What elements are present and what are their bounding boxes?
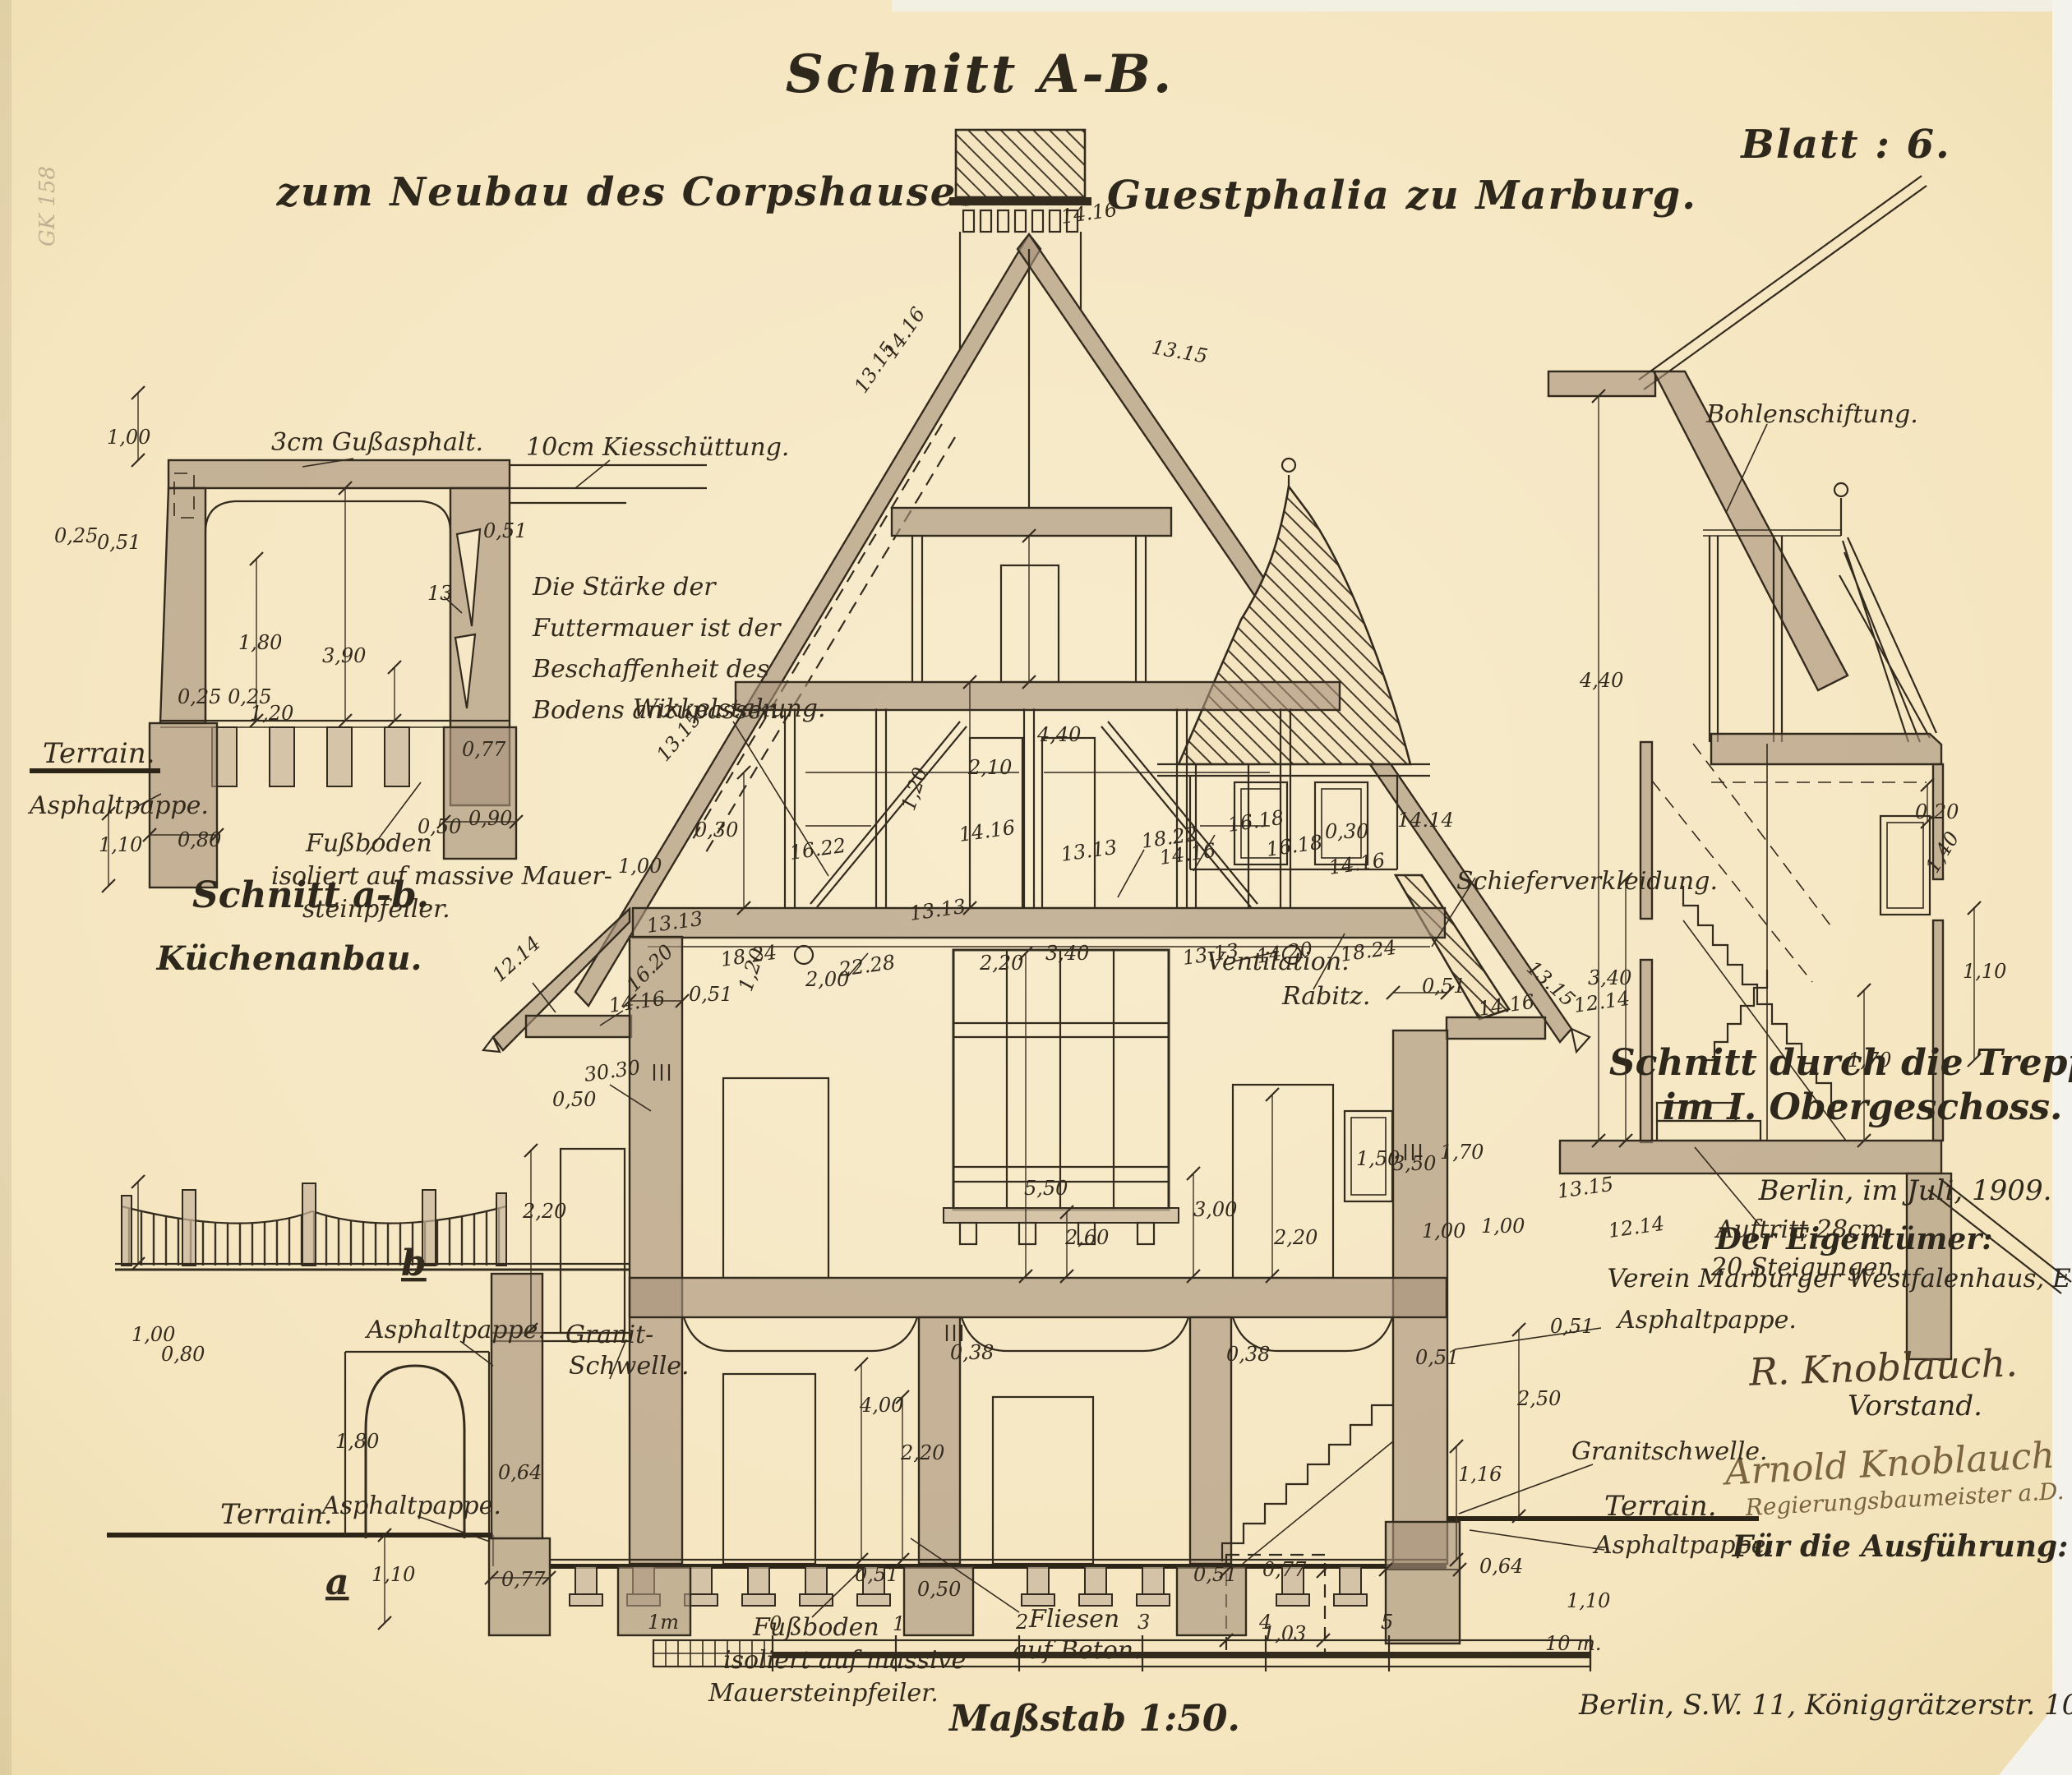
annotation-label: 0,38 <box>950 1341 994 1364</box>
annotation-label: 0,51 <box>483 519 527 542</box>
annotation-label: 0,80 <box>161 1343 205 1366</box>
annotation-label: Terrain. <box>1604 1490 1717 1523</box>
annotation-label: 0,30 <box>695 818 738 841</box>
annotation-label: a <box>325 1561 349 1603</box>
annotation-label: Asphaltpappe. <box>1615 1306 1797 1335</box>
annotation-label: 3,50 <box>1392 1152 1436 1175</box>
annotation-label: 0,50 <box>552 1088 596 1111</box>
annotation-label: Granitschwelle. <box>1571 1437 1768 1466</box>
upper-attic-floor <box>736 682 1340 710</box>
annotation-label: Mauersteinpfeiler. <box>708 1679 939 1708</box>
scan-edge-right <box>2052 0 2072 1775</box>
subtitle-right: Guestphalia zu Marburg. <box>1107 173 1697 219</box>
annotation-label: 20 Steigungen. <box>1710 1253 1901 1282</box>
annotation-label: 0,51 <box>1550 1315 1594 1338</box>
annotation-label: 2,10 <box>967 756 1012 779</box>
annotation-label: Terrain. <box>220 1498 333 1531</box>
stair-detail-subtitle: im I. Obergeschoss. <box>1663 1086 2063 1128</box>
annotation-label: 0,51 <box>1422 975 1465 998</box>
annotation-label: 2,20 <box>979 952 1023 975</box>
annotation-label: auf Beton. <box>1013 1636 1142 1665</box>
annotation-label: 2,60 <box>1064 1226 1109 1249</box>
annotation-label: b <box>401 1242 427 1284</box>
annotation-label: Asphaltpappe. <box>320 1491 501 1520</box>
annotation-label: 2,20 <box>522 1200 566 1223</box>
annotation-label: 0,30 <box>1325 820 1368 843</box>
annotation-label: 0,64 <box>498 1461 542 1484</box>
annotation-label: Asphaltpappe. <box>364 1316 546 1344</box>
left-outer-wall <box>630 937 682 1564</box>
annotation-label: 1,00 <box>1481 1215 1525 1238</box>
annotation-label: 1,70 <box>1848 1049 1891 1072</box>
annotation-label: 14.14 <box>1397 809 1454 832</box>
annotation-label: 1,10 <box>1963 960 2006 983</box>
drawing-title: Schnitt A-B. <box>786 44 1174 105</box>
annotation-label: 0,77 <box>501 1568 546 1591</box>
kitchen-detail-subtitle: Küchenanbau. <box>156 939 422 978</box>
annotation-label: 1,16 <box>1458 1463 1502 1486</box>
annotation-label: Ventilation. <box>1207 947 1350 976</box>
annotation-label: 1,10 <box>99 833 142 856</box>
annotation-label: Schieferverkleidung. <box>1456 867 1718 896</box>
annotation-label: Schwelle. <box>569 1352 690 1381</box>
signature-1: R. Knoblauch. <box>1747 1340 2018 1394</box>
annotation-label: 2 <box>1015 1611 1028 1634</box>
annotation-label: isoliert auf massive Mauer- <box>271 862 612 891</box>
annotation-label: isoliert auf massive <box>723 1646 966 1675</box>
drawing-stage: GK 158 Schnitt A-B. zum Neubau des Corps… <box>0 0 2072 1775</box>
scanned-drawing-page: { "meta": { "archive_note": "GK 158" }, … <box>0 0 2072 1775</box>
annotation-label: 5,50 <box>1024 1177 1068 1200</box>
annotation-label: 10 m. <box>1545 1632 1602 1655</box>
annotation-label: 0,64 <box>1479 1555 1523 1578</box>
execution-heading: Für die Ausführung: <box>1732 1529 2069 1564</box>
annotation-label: Beschaffenheit des <box>532 655 769 684</box>
annotation-label: Die Stärke der <box>532 573 717 602</box>
annotation-label: 0,51 <box>1415 1346 1459 1369</box>
annotation-label: 1,20 <box>250 702 293 725</box>
annotation-label: 2,50 <box>1516 1387 1561 1410</box>
annotation-label: 1,00 <box>1422 1219 1465 1242</box>
annotation-label: 5 <box>1381 1611 1393 1634</box>
annotation-label: 0,20 <box>1915 800 1959 823</box>
annotation-label: 0,51 <box>855 1563 898 1586</box>
annotation-label: 3,40 <box>1588 966 1631 989</box>
annotation-label: Terrain. <box>43 737 155 770</box>
annotation-label: Bohlenschiftung. <box>1705 400 1918 429</box>
annotation-label: Asphaltpappe. <box>1592 1531 1774 1560</box>
date-line: Berlin, im Juli, 1909. <box>1758 1174 2052 1207</box>
annotation-label: 0,51 <box>689 983 732 1006</box>
annotation-label: 1 <box>893 1612 905 1635</box>
annotation-label: 4 <box>1258 1611 1271 1634</box>
annotation-label: 0,77 <box>462 738 506 761</box>
annotation-label: 0,38 <box>1226 1343 1270 1366</box>
annotation-label: Asphaltpappe. <box>27 791 209 820</box>
annotation-label: 1m <box>648 1611 679 1634</box>
annotation-label: Rabitz. <box>1281 982 1370 1011</box>
annotation-label: 1,80 <box>335 1430 379 1453</box>
annotation-label: steinpfeiler. <box>302 895 450 924</box>
annotation-label: 1,00 <box>618 855 662 878</box>
annotation-label: 13 <box>427 582 453 605</box>
annotation-label: Granit- <box>565 1321 653 1349</box>
annotation-label: 3 <box>1138 1611 1150 1634</box>
annotation-label: 4,40 <box>1579 669 1623 692</box>
annotation-label: 3cm Gußasphalt. <box>271 428 483 457</box>
annotation-label: 1,10 <box>1567 1589 1610 1612</box>
annotation-label: Auftritt 28cm, <box>1714 1215 1893 1244</box>
annotation-label: 2,20 <box>1273 1226 1317 1249</box>
archive-pencil-note: GK 158 <box>35 166 60 247</box>
sheet-number: Blatt : 6. <box>1739 122 1951 168</box>
annotation-label: 0,50 <box>917 1578 961 1601</box>
annotation-label: 3,40 <box>1045 942 1089 965</box>
annotation-label: 0,51 <box>1193 1563 1237 1586</box>
annotation-label: 4,40 <box>1036 723 1081 746</box>
scan-shadow-left <box>0 0 12 1775</box>
annotation-label: 3,00 <box>1193 1198 1237 1221</box>
annotation-label: 0,90 <box>468 807 512 830</box>
subtitle-left: zum Neubau des Corpshauses <box>276 169 981 215</box>
scan-edge-top <box>892 0 2072 12</box>
address-line: Berlin, S.W. 11, Königgrätzerstr. 100a. <box>1578 1689 2072 1722</box>
annotation-label: Fußboden <box>305 829 432 858</box>
annotation-label: 0 <box>769 1612 782 1635</box>
scale-label: Maßstab 1:50. <box>948 1698 1240 1740</box>
annotation-label: 1,80 <box>238 631 282 654</box>
annotation-label: 0,51 <box>97 531 141 554</box>
annotation-label: 4,00 <box>859 1394 903 1417</box>
signature-1-role: Vorstand. <box>1848 1390 1982 1422</box>
stair-detail-title: Schnitt durch die Treppe <box>1609 1042 2072 1084</box>
annotation-label: 3,90 <box>322 644 366 667</box>
annotation-label: Bodens anzupassen. <box>532 696 786 725</box>
annotation-label: Futtermauer ist der <box>532 614 782 643</box>
architectural-drawing: GK 158 Schnitt A-B. zum Neubau des Corps… <box>0 0 2072 1775</box>
annotation-label: 0,77 <box>1262 1558 1307 1581</box>
annotation-label: 2,20 <box>900 1441 944 1464</box>
annotation-label: 1,70 <box>1440 1141 1484 1164</box>
annotation-label: Fliesen <box>1028 1605 1119 1634</box>
annotation-label: 10cm Kiesschüttung. <box>526 433 789 462</box>
annotation-label: 0,80 <box>178 828 221 851</box>
annotation-label: 1,10 <box>371 1563 415 1586</box>
annotation-label: 1,00 <box>107 426 150 449</box>
annotation-label: 0,25 <box>54 524 98 547</box>
